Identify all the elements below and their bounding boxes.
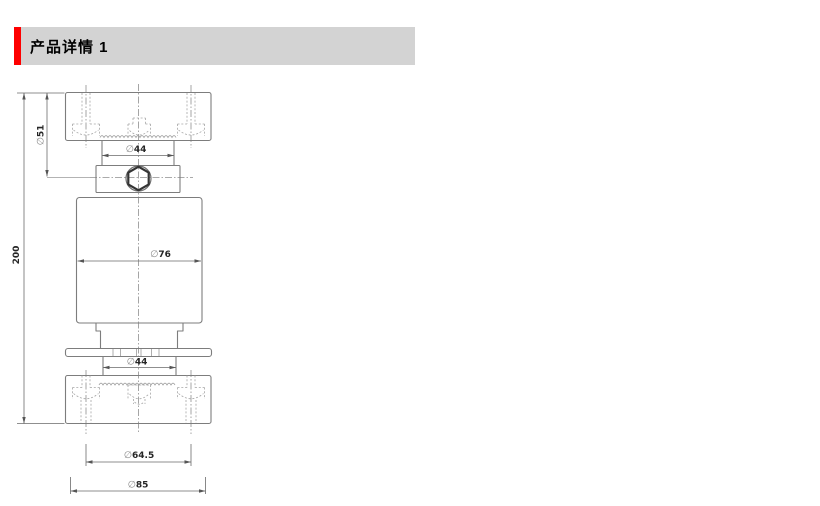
dimension-labels: 200 ∅51 ∅44 ∅76 ∅44 ∅64.5 ∅85 bbox=[12, 125, 171, 491]
dimension-arrowheads bbox=[22, 93, 205, 493]
dim-upper-neck-diameter: ∅44 bbox=[126, 144, 147, 155]
dim-upper-boss-diameter: ∅51 bbox=[36, 125, 47, 146]
flange-slots bbox=[113, 349, 159, 356]
thread-relief-line bbox=[100, 136, 176, 138]
dim-lower-neck-diameter: ∅44 bbox=[127, 357, 148, 368]
dim-body-diameter: ∅76 bbox=[150, 249, 171, 260]
hex-section bbox=[96, 166, 180, 193]
dim-bolt-circle-diameter: ∅64.5 bbox=[124, 450, 155, 461]
dim-overall-height: 200 bbox=[12, 246, 22, 265]
main-body-cylinder bbox=[77, 198, 203, 324]
dim-base-diameter: ∅85 bbox=[128, 480, 149, 491]
dimension-lines bbox=[17, 93, 206, 494]
technical-drawing: 200 ∅51 ∅44 ∅76 ∅44 ∅64.5 ∅85 bbox=[0, 0, 820, 506]
